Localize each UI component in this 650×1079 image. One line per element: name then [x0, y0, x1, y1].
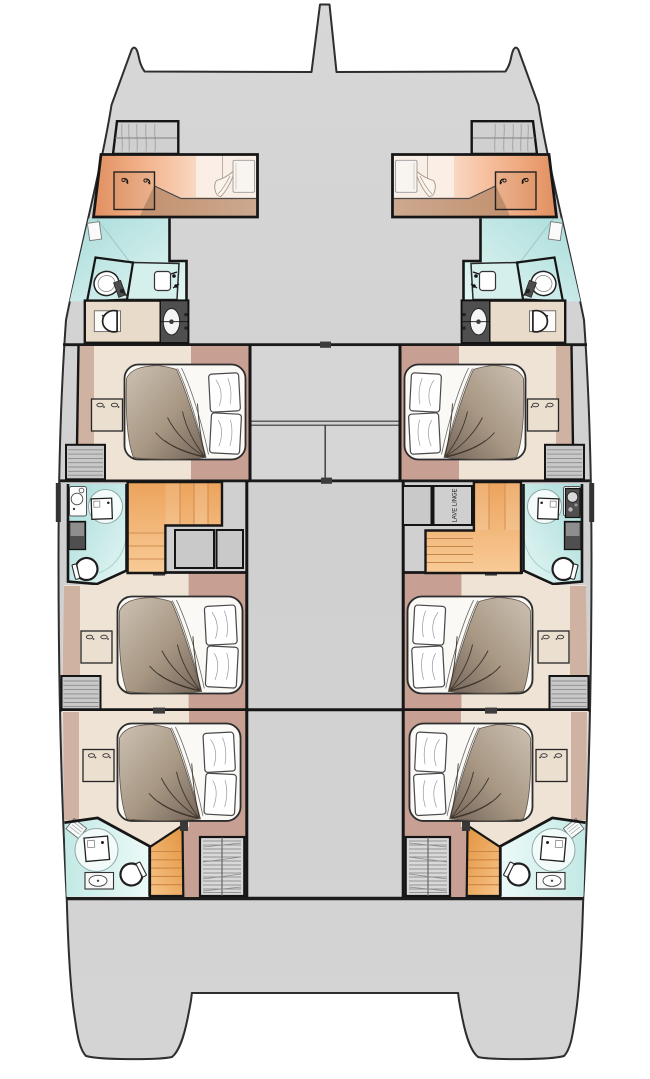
svg-text:LAVE LINGE: LAVE LINGE — [452, 489, 459, 523]
